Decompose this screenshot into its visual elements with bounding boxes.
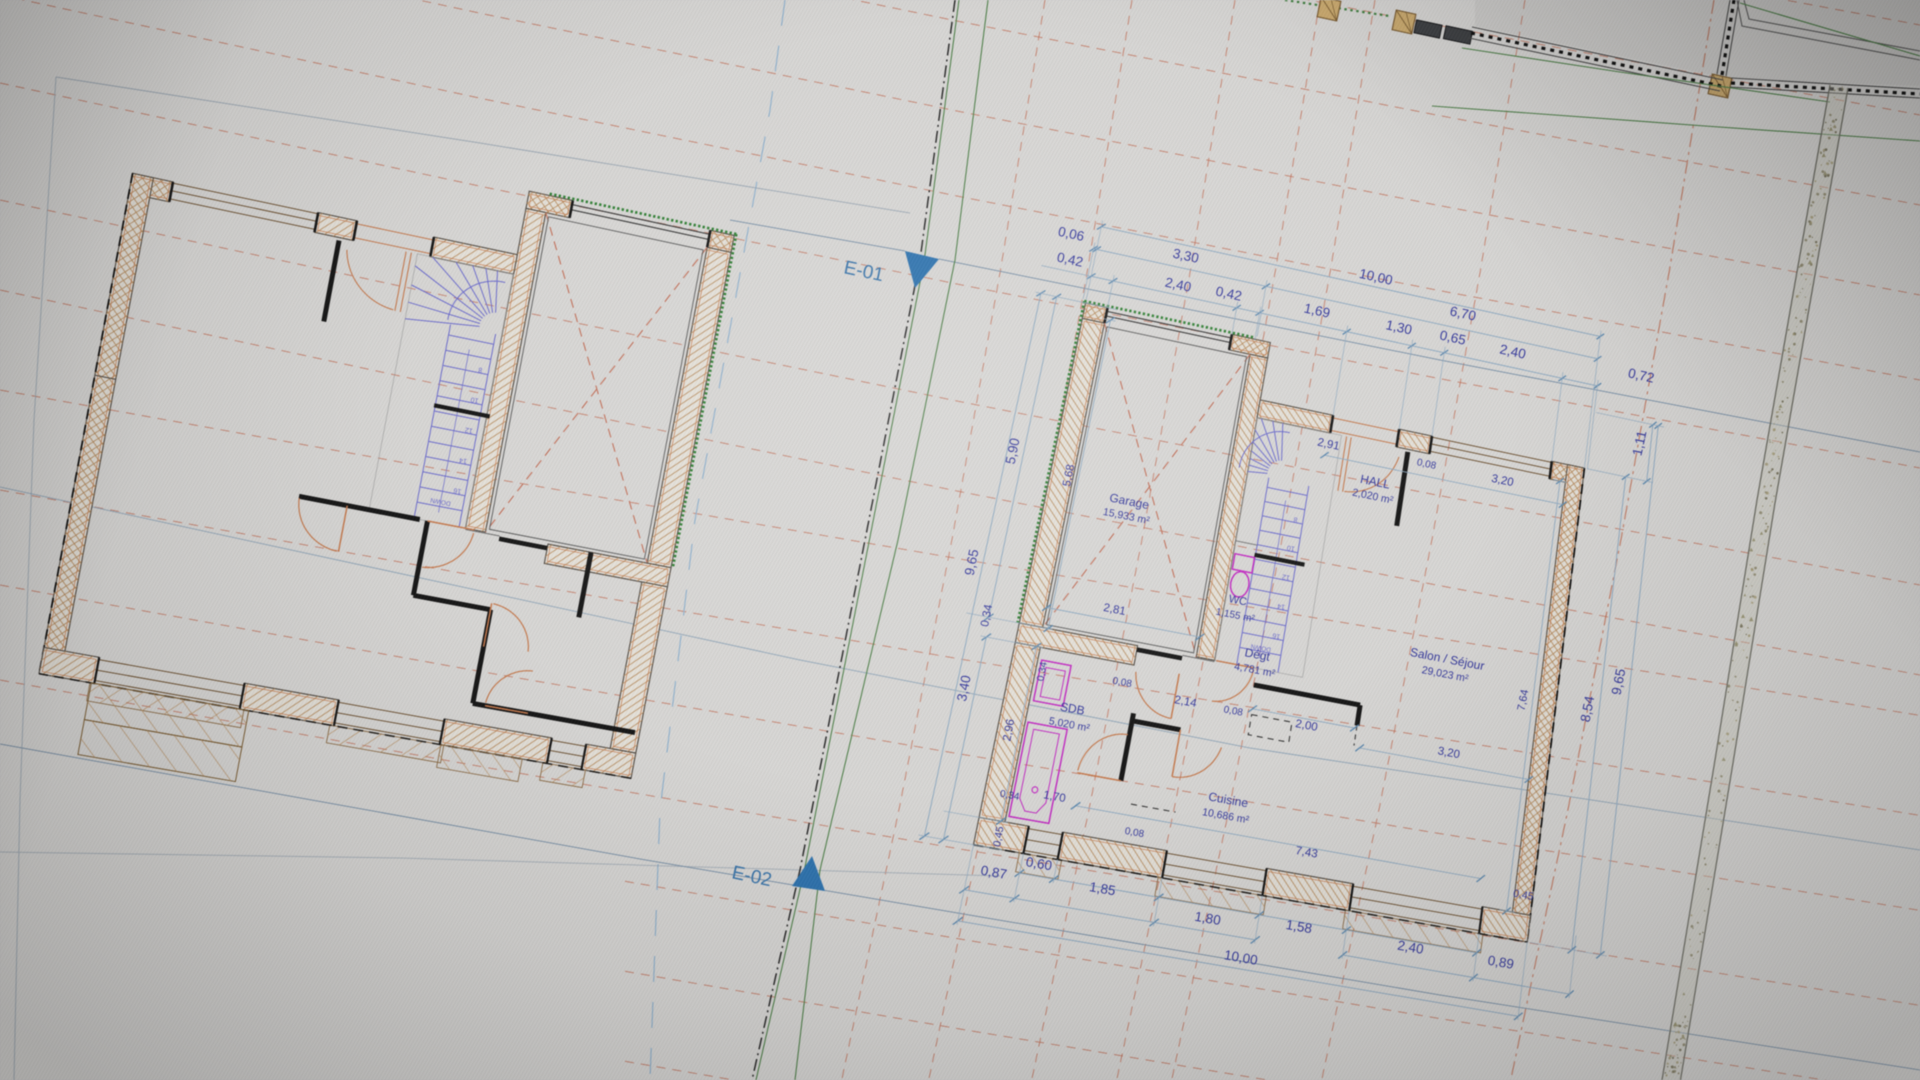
svg-text:16: 16 — [1272, 631, 1281, 639]
svg-text:14: 14 — [459, 456, 468, 464]
svg-text:14: 14 — [1277, 602, 1286, 610]
svg-text:16: 16 — [453, 486, 462, 494]
